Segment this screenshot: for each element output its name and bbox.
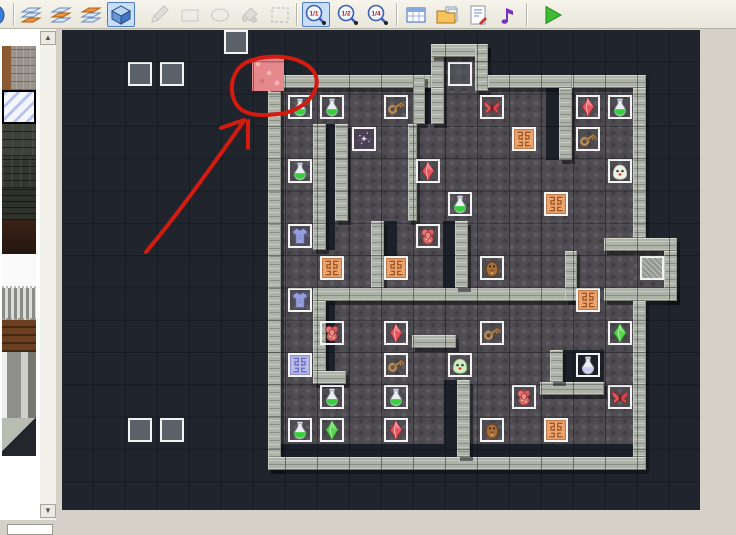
item-crystal-green bbox=[320, 418, 344, 442]
layer-2-button[interactable] bbox=[47, 2, 75, 27]
rose-icon bbox=[322, 323, 342, 343]
wood-plank-tile[interactable] bbox=[2, 320, 36, 352]
rune-orange-icon bbox=[546, 194, 566, 214]
dark-stone-tile[interactable] bbox=[2, 124, 36, 156]
key-icon bbox=[578, 129, 598, 149]
svg-text:1/1: 1/1 bbox=[309, 10, 318, 17]
item-potion-white bbox=[576, 353, 600, 377]
magic-icon bbox=[354, 129, 374, 149]
maroon-tile[interactable] bbox=[2, 220, 36, 254]
zoom-icon: 1/4 bbox=[366, 3, 390, 27]
wall-shadow-channel bbox=[326, 124, 335, 250]
wall-segment bbox=[431, 88, 444, 124]
ice-crystal-tile[interactable] bbox=[2, 90, 36, 124]
rune-orange-icon bbox=[546, 420, 566, 440]
svg-text:1/4: 1/4 bbox=[371, 10, 380, 17]
layers-icon bbox=[79, 3, 103, 27]
layers-icon bbox=[19, 3, 43, 27]
wall-segment bbox=[412, 335, 456, 348]
palette-scrollbar[interactable] bbox=[40, 29, 56, 520]
slime-white-icon bbox=[610, 161, 630, 181]
rune-orange-icon bbox=[578, 290, 598, 310]
event-square bbox=[640, 256, 664, 280]
item-potion-green bbox=[320, 95, 344, 119]
item-moth bbox=[608, 385, 632, 409]
item-rose bbox=[320, 321, 344, 345]
wall-segment bbox=[540, 382, 604, 395]
db-icon bbox=[404, 3, 428, 27]
wall-shadow-channel bbox=[443, 221, 455, 288]
moth-icon bbox=[610, 387, 630, 407]
item-key bbox=[384, 95, 408, 119]
wall-segment bbox=[572, 75, 646, 88]
zoom-icon: 1/2 bbox=[336, 3, 360, 27]
item-armor bbox=[288, 224, 312, 248]
rect-icon bbox=[178, 3, 202, 27]
select-tool-button[interactable] bbox=[266, 2, 294, 27]
potion-green-icon bbox=[386, 387, 406, 407]
pencil-tool-button[interactable] bbox=[145, 2, 173, 27]
wall-segment bbox=[313, 371, 346, 384]
zoom-icon: 1/1 bbox=[304, 3, 328, 27]
wall-segment bbox=[335, 124, 348, 221]
armor-icon bbox=[290, 290, 310, 310]
item-moth bbox=[480, 95, 504, 119]
rune-blue-icon bbox=[290, 355, 310, 375]
owl-icon bbox=[482, 420, 502, 440]
bottom-scroll-gutter[interactable] bbox=[56, 510, 736, 535]
play-button[interactable] bbox=[538, 2, 566, 27]
wall-segment bbox=[371, 221, 384, 288]
potion-green-icon bbox=[322, 97, 342, 117]
rune-orange-icon bbox=[322, 258, 342, 278]
script-icon bbox=[466, 3, 490, 27]
wall-segment bbox=[268, 75, 431, 88]
music-icon bbox=[496, 3, 520, 27]
bars-tile[interactable] bbox=[2, 288, 36, 320]
wall-shadow-channel bbox=[546, 88, 559, 160]
rose-icon bbox=[514, 387, 534, 407]
cube-icon bbox=[109, 3, 133, 27]
potion-green-icon bbox=[322, 387, 342, 407]
item-crystal-red bbox=[576, 95, 600, 119]
item-key bbox=[576, 127, 600, 151]
item-rose bbox=[512, 385, 536, 409]
map-layer bbox=[62, 30, 700, 510]
ellipse-icon bbox=[208, 3, 232, 27]
right-scroll-gutter[interactable] bbox=[700, 30, 736, 535]
item-potion-green bbox=[448, 192, 472, 216]
item-rune-orange bbox=[576, 288, 600, 312]
toolbar-separator bbox=[13, 3, 15, 26]
script-button[interactable] bbox=[464, 2, 492, 27]
event-layer-button[interactable] bbox=[107, 2, 135, 27]
wall-segment bbox=[457, 380, 470, 457]
potion-green-icon bbox=[290, 161, 310, 181]
key-icon bbox=[386, 355, 406, 375]
fill-icon bbox=[238, 3, 262, 27]
potion-green-icon bbox=[290, 420, 310, 440]
wall-segment bbox=[313, 124, 326, 250]
item-potion-green bbox=[288, 95, 312, 119]
wall-segment bbox=[604, 288, 677, 301]
event-square bbox=[160, 62, 184, 86]
wall-segment bbox=[475, 44, 488, 91]
play-icon bbox=[540, 3, 564, 27]
item-potion-green bbox=[288, 418, 312, 442]
potion-green-icon bbox=[610, 97, 630, 117]
event-square bbox=[448, 62, 472, 86]
ellipse-tool-button[interactable] bbox=[206, 2, 234, 27]
crystal-red-icon bbox=[386, 420, 406, 440]
materials-icon bbox=[435, 3, 459, 27]
item-crystal-red bbox=[384, 418, 408, 442]
layer-1-button[interactable] bbox=[17, 2, 45, 27]
item-crystal-red bbox=[416, 159, 440, 183]
music-button[interactable] bbox=[494, 2, 522, 27]
owl-icon bbox=[482, 258, 502, 278]
dark-stone-tile-2[interactable] bbox=[2, 156, 36, 188]
rune-orange-icon bbox=[514, 129, 534, 149]
toolbar-separator bbox=[296, 3, 298, 26]
item-rune-orange bbox=[512, 127, 536, 151]
item-rune-orange bbox=[544, 192, 568, 216]
crystal-green-icon bbox=[610, 323, 630, 343]
item-crystal-green bbox=[608, 321, 632, 345]
moth-icon bbox=[482, 97, 502, 117]
rune-orange-icon bbox=[386, 258, 406, 278]
event-square bbox=[160, 418, 184, 442]
stone-brick-tile[interactable] bbox=[2, 46, 36, 90]
main-toolbar: 1/11/21/4 bbox=[0, 0, 736, 29]
wall-segment bbox=[455, 221, 468, 288]
wall-segment bbox=[413, 75, 425, 124]
layers-icon bbox=[49, 3, 73, 27]
item-key bbox=[384, 353, 408, 377]
svg-text:1/2: 1/2 bbox=[341, 10, 350, 17]
toolbar-separator bbox=[396, 3, 398, 26]
item-rune-orange bbox=[384, 256, 408, 280]
crystal-red-icon bbox=[578, 97, 598, 117]
pink-marked-tile bbox=[252, 58, 284, 91]
zoom-1-4-button[interactable]: 1/4 bbox=[364, 2, 392, 27]
zoom-1-1-button[interactable]: 1/1 bbox=[302, 2, 330, 27]
materials-button[interactable] bbox=[433, 2, 461, 27]
pencil-icon bbox=[147, 3, 171, 27]
white-tile[interactable] bbox=[2, 254, 36, 288]
rectangle-tool-button[interactable] bbox=[176, 2, 204, 27]
layer-3-button[interactable] bbox=[77, 2, 105, 27]
item-magic bbox=[352, 127, 376, 151]
key-icon bbox=[386, 97, 406, 117]
item-rune-orange bbox=[544, 418, 568, 442]
potion-green-icon bbox=[290, 97, 310, 117]
tileset-palette[interactable]: ▲▼ bbox=[0, 29, 56, 520]
item-owl bbox=[480, 418, 504, 442]
dark-brick-tile[interactable] bbox=[2, 188, 36, 220]
key-icon bbox=[482, 323, 502, 343]
item-armor bbox=[288, 288, 312, 312]
item-slime-green bbox=[448, 353, 472, 377]
event-square bbox=[224, 30, 248, 54]
armor-icon bbox=[290, 226, 310, 246]
crystal-red-icon bbox=[386, 323, 406, 343]
wall-segment bbox=[633, 88, 646, 238]
event-square bbox=[128, 418, 152, 442]
potion-green-icon bbox=[450, 194, 470, 214]
pillar-tile[interactable] bbox=[2, 352, 36, 418]
select-icon bbox=[268, 3, 292, 27]
palette-footer bbox=[0, 520, 56, 535]
item-rune-blue bbox=[288, 353, 312, 377]
database-button[interactable] bbox=[402, 2, 430, 27]
wall-shadow-channel bbox=[384, 221, 397, 258]
palette-footer-box bbox=[7, 524, 53, 535]
ramp-tile[interactable] bbox=[2, 418, 36, 456]
item-rune-orange bbox=[320, 256, 344, 280]
toolbar-separator bbox=[526, 3, 528, 26]
palette-scroll-down[interactable]: ▼ bbox=[40, 504, 56, 518]
palette-scroll-up[interactable]: ▲ bbox=[40, 31, 56, 45]
fill-tool-button[interactable] bbox=[236, 2, 264, 27]
slime-green-icon bbox=[450, 355, 470, 375]
wall-segment bbox=[488, 75, 572, 88]
item-rose bbox=[416, 224, 440, 248]
zoom-1-2-button[interactable]: 1/2 bbox=[334, 2, 362, 27]
item-crystal-red bbox=[384, 321, 408, 345]
item-potion-green bbox=[608, 95, 632, 119]
potion-white-icon bbox=[578, 355, 598, 375]
wall-segment bbox=[550, 350, 563, 382]
item-potion-green bbox=[320, 385, 344, 409]
item-key bbox=[480, 321, 504, 345]
item-slime-white bbox=[608, 159, 632, 183]
item-owl bbox=[480, 256, 504, 280]
crystal-green-icon bbox=[322, 420, 342, 440]
wall-segment bbox=[604, 238, 677, 251]
wall-segment bbox=[313, 288, 572, 301]
wall-segment bbox=[559, 88, 572, 160]
item-potion-green bbox=[384, 385, 408, 409]
item-potion-green bbox=[288, 159, 312, 183]
rose-icon bbox=[418, 226, 438, 246]
map-canvas[interactable] bbox=[62, 30, 700, 510]
wall-segment bbox=[633, 301, 646, 457]
wall-segment bbox=[268, 75, 281, 470]
event-square bbox=[128, 62, 152, 86]
crystal-red-icon bbox=[418, 161, 438, 181]
wall-segment bbox=[268, 457, 646, 470]
